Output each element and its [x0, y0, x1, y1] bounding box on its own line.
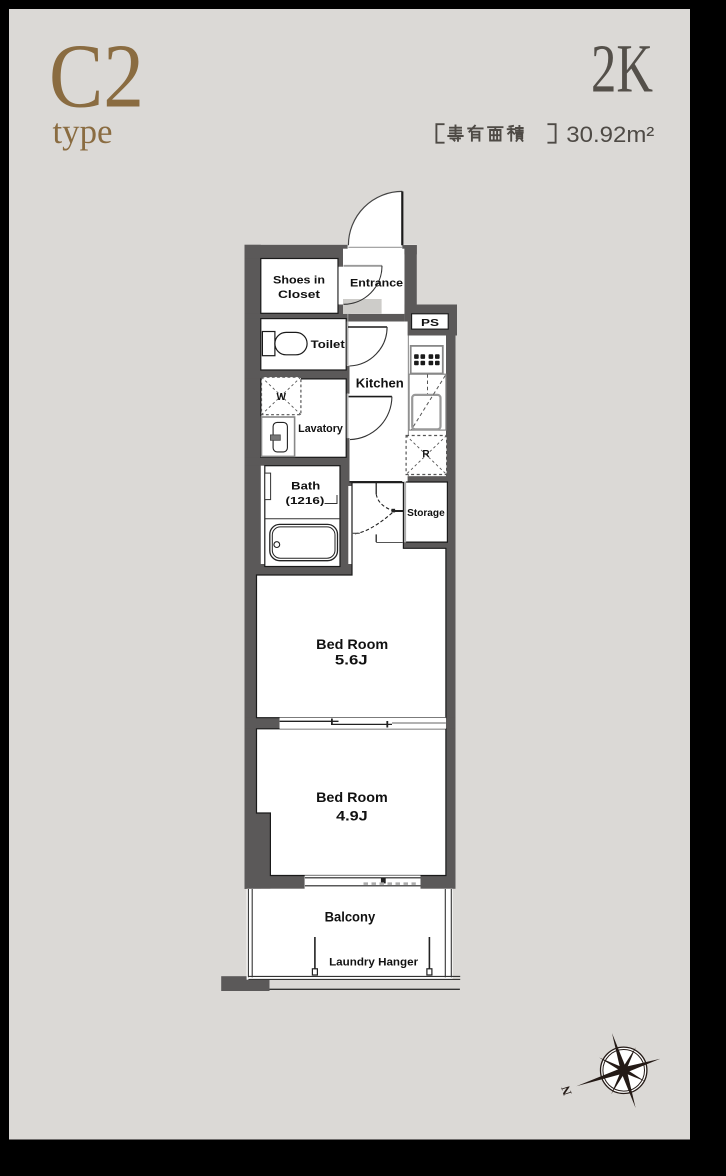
svg-text:type: type [53, 112, 113, 151]
svg-text:2K: 2K [591, 31, 653, 107]
svg-text:Storage: Storage [407, 507, 445, 519]
svg-text:Toilet: Toilet [311, 339, 345, 351]
svg-text:Bed Room: Bed Room [316, 636, 388, 652]
svg-text:Balcony: Balcony [325, 910, 376, 925]
svg-text:4.9J: 4.9J [336, 808, 368, 824]
svg-text:R: R [422, 449, 430, 460]
svg-text:Kitchen: Kitchen [356, 376, 404, 391]
svg-text:Entrance: Entrance [350, 278, 403, 290]
svg-text:Lavatory: Lavatory [298, 423, 344, 435]
svg-text:W: W [276, 392, 286, 403]
svg-text:Closet: Closet [278, 289, 320, 301]
svg-text:Laundry Hanger: Laundry Hanger [329, 957, 419, 969]
svg-text:Shoes in: Shoes in [273, 275, 325, 287]
svg-text:Bed Room: Bed Room [316, 789, 388, 805]
svg-text:30.92m²: 30.92m² [566, 122, 654, 147]
svg-text:Bath: Bath [291, 481, 320, 493]
svg-text:PS: PS [421, 318, 439, 329]
svg-text:5.6J: 5.6J [335, 652, 368, 668]
svg-text:(1216): (1216) [286, 495, 325, 507]
